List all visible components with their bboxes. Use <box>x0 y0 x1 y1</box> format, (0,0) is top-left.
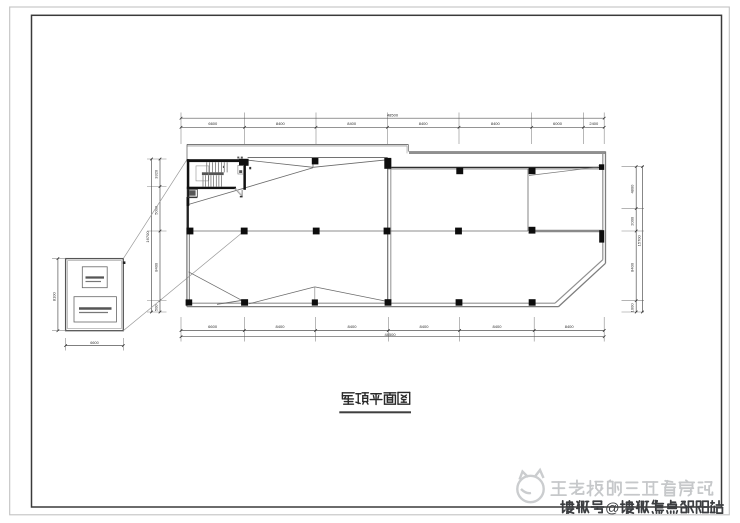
svg-text:8400: 8400 <box>348 324 358 329</box>
svg-text:48500: 48500 <box>384 332 396 337</box>
svg-text:@: @ <box>605 500 619 516</box>
svg-text:8400: 8400 <box>491 121 501 126</box>
svg-text:2400: 2400 <box>589 121 599 126</box>
svg-text:4800: 4800 <box>630 184 635 194</box>
svg-text:3320: 3320 <box>154 169 159 179</box>
svg-text:8400: 8400 <box>493 324 503 329</box>
svg-text:6000: 6000 <box>553 121 563 126</box>
svg-text:8400: 8400 <box>276 324 286 329</box>
svg-text:8400: 8400 <box>154 262 159 272</box>
svg-text:16700: 16700 <box>145 231 150 243</box>
svg-text:15700: 15700 <box>637 234 642 246</box>
svg-text:1000: 1000 <box>630 303 635 313</box>
svg-text:8400: 8400 <box>276 121 286 126</box>
svg-text:8400: 8400 <box>565 324 575 329</box>
svg-text:8400: 8400 <box>347 121 357 126</box>
svg-text:8400: 8400 <box>630 262 635 272</box>
svg-text:2000: 2000 <box>630 216 635 226</box>
svg-text:6600: 6600 <box>208 324 218 329</box>
svg-text:8400: 8400 <box>419 121 429 126</box>
svg-text:48500: 48500 <box>387 112 399 117</box>
svg-text:6600: 6600 <box>90 341 98 345</box>
svg-text:8400: 8400 <box>420 324 430 329</box>
svg-text:6600: 6600 <box>208 121 218 126</box>
svg-text:8100: 8100 <box>51 291 56 301</box>
